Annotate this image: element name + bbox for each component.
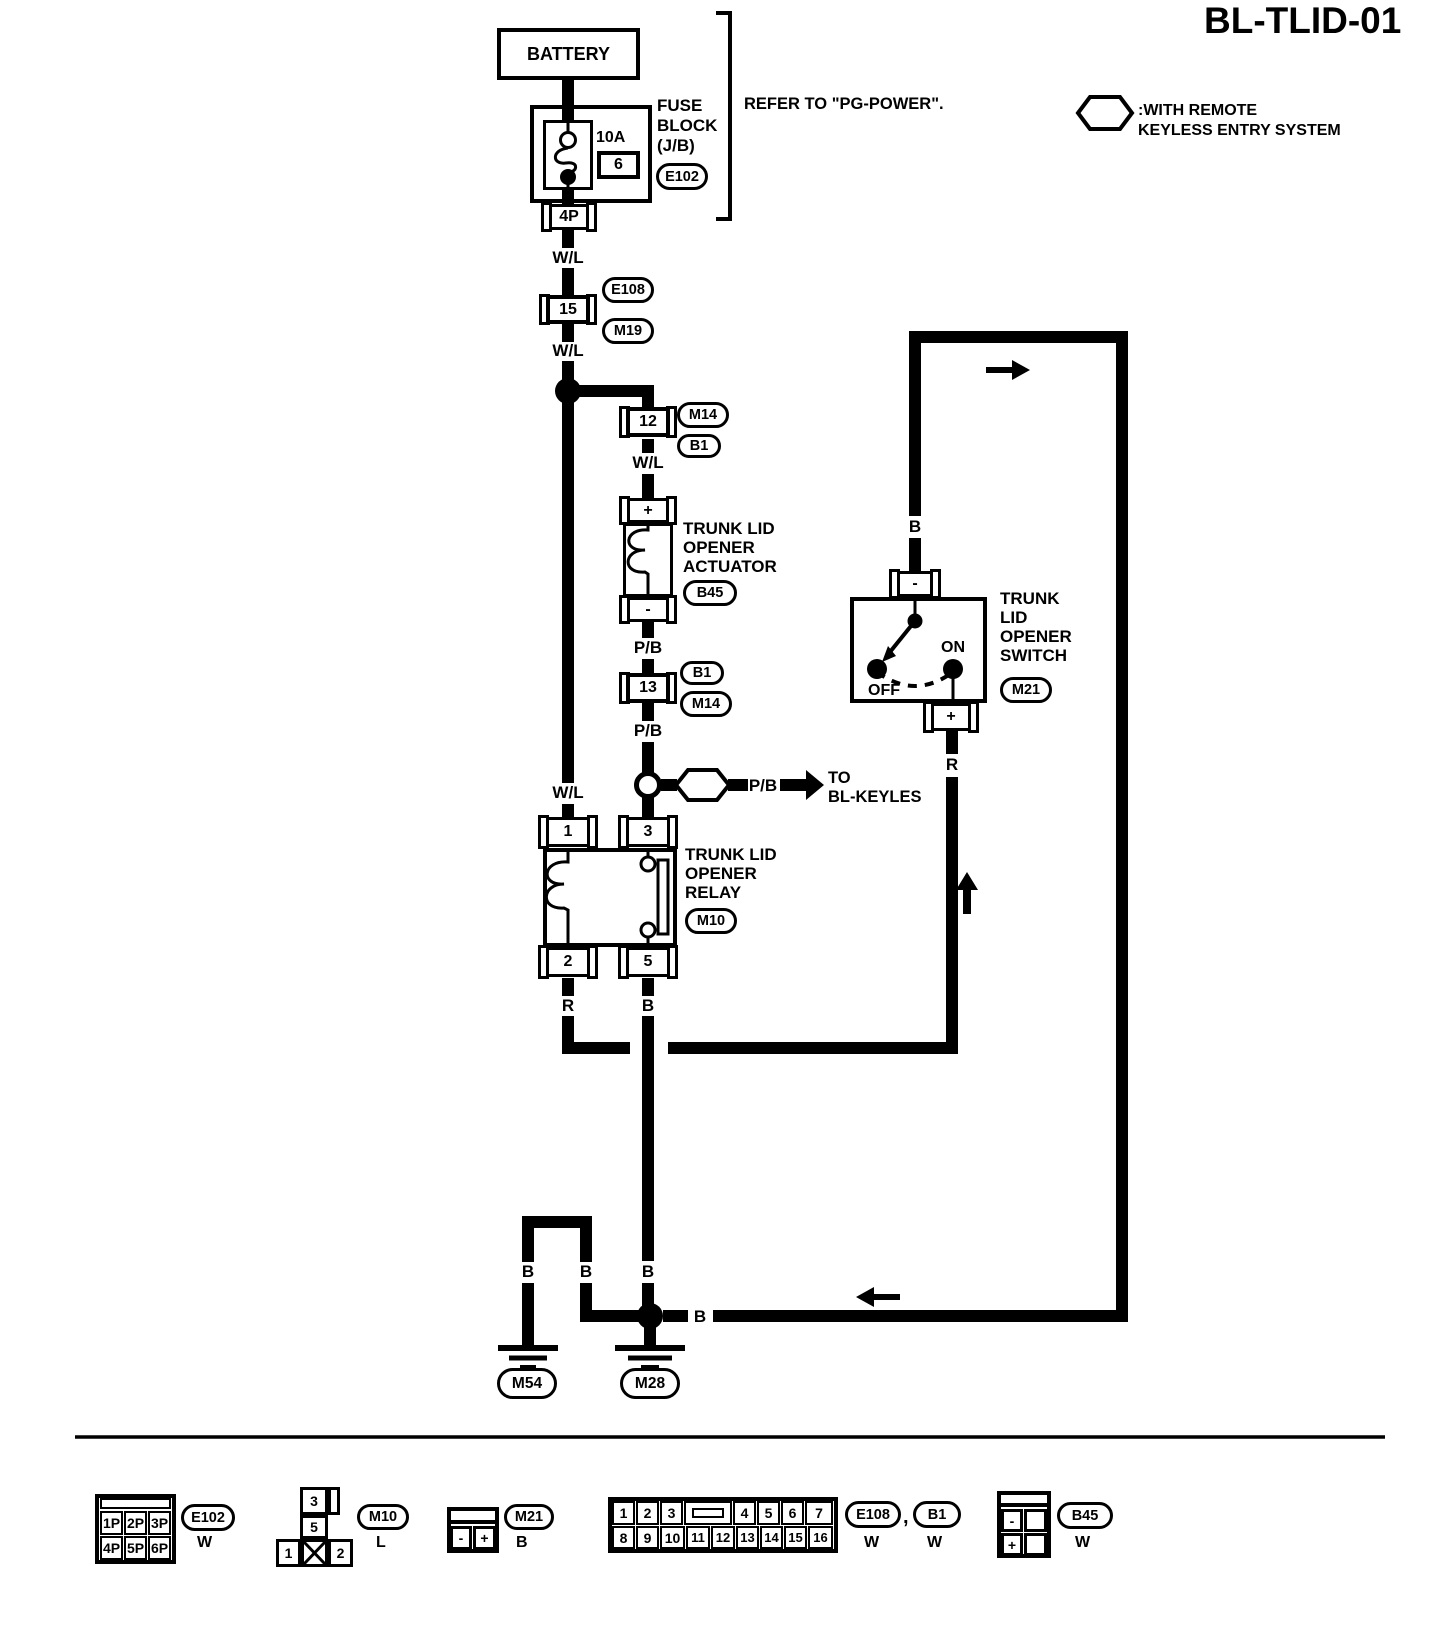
legend-m21-color: B [516, 1533, 528, 1552]
legend-oval-e102: E102 [181, 1504, 235, 1531]
legend-b45-color: W [1075, 1533, 1090, 1552]
oval-m19: M19 [602, 318, 654, 344]
legend-m10-tab [328, 1487, 340, 1515]
legend-b45-header [997, 1491, 1051, 1507]
wire-label-r-switch: R [946, 755, 958, 775]
actuator-minus-terminal: - [627, 597, 669, 622]
switch-plus-terminal: + [931, 703, 971, 731]
oval-m28: M28 [620, 1368, 680, 1399]
page-title: BL-TLID-01 [1204, 0, 1401, 42]
legend-e108b1-cell: 14 [760, 1526, 783, 1549]
legend-m10-cell: 5 [300, 1515, 328, 1539]
oval-m14-top: M14 [677, 402, 729, 428]
wire-label-wl-top: W/L [552, 248, 583, 268]
legend-comma: , [903, 1508, 909, 1527]
fuse-block-label: FUSE BLOCK (J/B) [657, 96, 717, 156]
ground-m54-icon [498, 1348, 558, 1367]
legend-b45-cell: - [1001, 1509, 1023, 1532]
fuse-number-box: 6 [597, 151, 640, 179]
legend-e108b1-cell: 1 [612, 1501, 635, 1525]
fuse-box [543, 120, 593, 190]
legend-e102-cell: 3P [148, 1511, 171, 1535]
legend-e108b1-cell: 2 [636, 1501, 659, 1525]
wire-label-r-pin2: R [562, 996, 574, 1016]
rk-branch-symbol: RK [691, 777, 713, 795]
wire-label-pb-2: P/B [634, 721, 662, 741]
legend-e108b1-cell: 4 [733, 1501, 756, 1525]
keyles-arrow-icon [780, 770, 824, 800]
legend-e108b1-cell: 11 [686, 1526, 710, 1549]
legend-e108b1-cell: 12 [711, 1526, 735, 1549]
connector-12: 12 [626, 407, 670, 437]
relay-label: TRUNK LID OPENER RELAY [685, 845, 777, 902]
wire-label-b-u-right: B [580, 1262, 592, 1282]
wire-branch-to-12 [568, 391, 648, 408]
legend-oval-m21: M21 [504, 1504, 554, 1530]
oval-b1-bottom: B1 [680, 661, 724, 685]
legend-e108-color: W [864, 1533, 879, 1552]
oval-b1-top: B1 [677, 434, 721, 458]
oval-m10: M10 [685, 908, 737, 934]
legend-e108b1-cell: 3 [660, 1501, 683, 1525]
connector-15: 15 [546, 295, 590, 324]
wire-label-wl-branch: W/L [632, 453, 663, 473]
legend-e102-cell: 6P [148, 1536, 171, 1560]
wire-label-pb-rk: P/B [749, 776, 777, 796]
legend-b45-cell [1024, 1533, 1047, 1556]
legend-e102-cell: 4P [100, 1536, 123, 1560]
fuse-rating-label: 10A [596, 128, 625, 147]
legend-b45-cell [1024, 1509, 1047, 1532]
wire-segments [528, 76, 1122, 1348]
relay-pin-3: 3 [626, 817, 670, 847]
legend-oval-b1: B1 [913, 1501, 961, 1528]
junction-dot-top [555, 378, 581, 404]
junction-dot-bottom [637, 1303, 663, 1329]
legend-e108b1-cell: 8 [612, 1526, 635, 1549]
connector-13: 13 [626, 673, 670, 703]
wiring-svg [0, 0, 1456, 1642]
relay-pin-1: 1 [546, 817, 590, 847]
wiring-diagram-page: BL-TLID-01 RK :WITH REMOTE KEYLESS ENTRY… [0, 0, 1456, 1642]
flow-arrow-right-icon [986, 360, 1030, 380]
connector-oval-e102: E102 [656, 163, 708, 190]
oval-m21: M21 [1000, 677, 1052, 703]
legend-b45-cell: + [1001, 1533, 1023, 1556]
legend-m10-cell: 2 [328, 1539, 353, 1567]
legend-e102-header [100, 1498, 171, 1509]
rk-junction-circle [637, 774, 660, 797]
connector-4p: 4P [549, 204, 589, 230]
switch-on-label: ON [941, 639, 965, 657]
refer-bracket-icon [716, 13, 730, 219]
legend-e102-cell: 5P [124, 1536, 147, 1560]
rk-note-symbol: RK [1094, 104, 1116, 122]
switch-label: TRUNK LID OPENER SWITCH [1000, 589, 1072, 665]
wire-ground-jumper [528, 1222, 586, 1262]
wire-label-wl-relay: W/L [552, 783, 583, 803]
legend-m10-x-cell [301, 1539, 328, 1567]
refer-note: REFER TO "PG-POWER". [744, 95, 944, 114]
legend-e108b1-cell: 7 [805, 1501, 833, 1525]
oval-b45: B45 [683, 580, 737, 606]
relay-body [543, 848, 677, 947]
legend-e108b1-cell: 10 [660, 1526, 685, 1549]
legend-m21-header [447, 1507, 499, 1524]
legend-e102-color: W [197, 1533, 212, 1552]
legend-e108b1-cell: 5 [757, 1501, 780, 1525]
wire-label-b-loop: B [694, 1307, 706, 1327]
to-bl-keyles-label: TO BL-KEYLES [828, 769, 922, 807]
actuator-body [623, 523, 673, 597]
legend-e108b1-cell: 13 [736, 1526, 759, 1549]
ground-m28-icon [615, 1348, 685, 1367]
actuator-plus-terminal: + [627, 498, 669, 523]
legend-m21-cell: + [473, 1526, 496, 1550]
legend-b1-color: W [927, 1533, 942, 1552]
switch-minus-terminal: - [897, 571, 933, 597]
battery-box: BATTERY [497, 28, 640, 80]
wire-label-pb-1: P/B [634, 638, 662, 658]
wire-r-run-left [568, 1016, 630, 1048]
legend-e108b1-cell: 15 [784, 1526, 807, 1549]
legend-e108b1-cell: 16 [808, 1526, 833, 1549]
legend-m21-cell: - [450, 1526, 472, 1550]
wire-switch-loop [713, 337, 1122, 1316]
relay-pin-5: 5 [626, 947, 670, 977]
oval-e108: E108 [602, 277, 654, 303]
wire-label-b-switch: B [909, 517, 921, 537]
rk-note-text: :WITH REMOTE KEYLESS ENTRY SYSTEM [1138, 101, 1341, 140]
relay-pin-2: 2 [546, 947, 590, 977]
legend-m10-color: L [376, 1533, 386, 1552]
flow-arrow-left-icon [856, 1287, 900, 1307]
legend-oval-e108: E108 [845, 1501, 901, 1528]
legend-e102-cell: 1P [100, 1511, 123, 1535]
wire-label-b-main: B [642, 1262, 654, 1282]
legend-e108b1-slot [684, 1501, 732, 1525]
switch-off-label: OFF [868, 682, 900, 700]
legend-e108b1-cell: 9 [636, 1526, 659, 1549]
legend-e102-cell: 2P [124, 1511, 147, 1535]
oval-m14-bottom: M14 [680, 691, 732, 717]
legend-oval-b45: B45 [1057, 1502, 1113, 1529]
flow-arrow-up-icon [956, 872, 978, 914]
actuator-label: TRUNK LID OPENER ACTUATOR [683, 519, 777, 576]
legend-oval-m10: M10 [357, 1504, 409, 1530]
wire-label-b-u-left: B [522, 1262, 534, 1282]
wire-label-b-pin5: B [642, 996, 654, 1016]
wire-label-wl-mid: W/L [552, 341, 583, 361]
slot-icon [692, 1508, 724, 1518]
legend-m10-cell: 1 [276, 1539, 301, 1567]
legend-e108b1-cell: 6 [781, 1501, 804, 1525]
legend-m10-cell: 3 [300, 1487, 328, 1515]
oval-m54: M54 [497, 1368, 557, 1399]
